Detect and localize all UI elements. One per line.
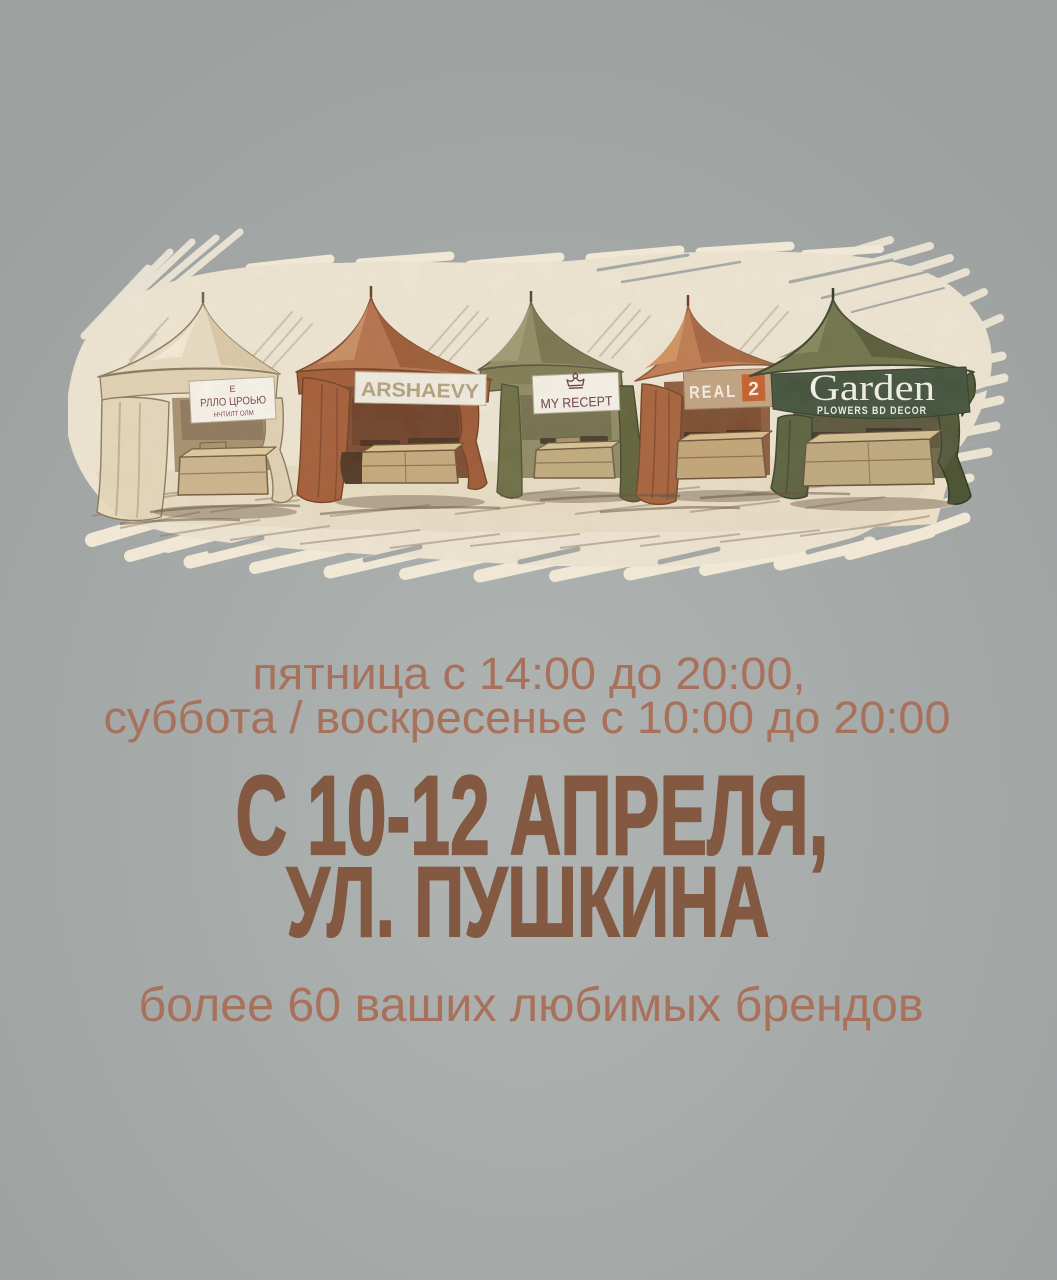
svg-text:суббота / воскресенье с 10:00: суббота / воскресенье с 10:00 до 20:00 <box>104 692 951 743</box>
svg-text:УЛ. ПУШКИНА: УЛ. ПУШКИНА <box>287 846 770 957</box>
svg-text:более 60 ваших любимых брендов: более 60 ваших любимых брендов <box>139 979 924 1032</box>
